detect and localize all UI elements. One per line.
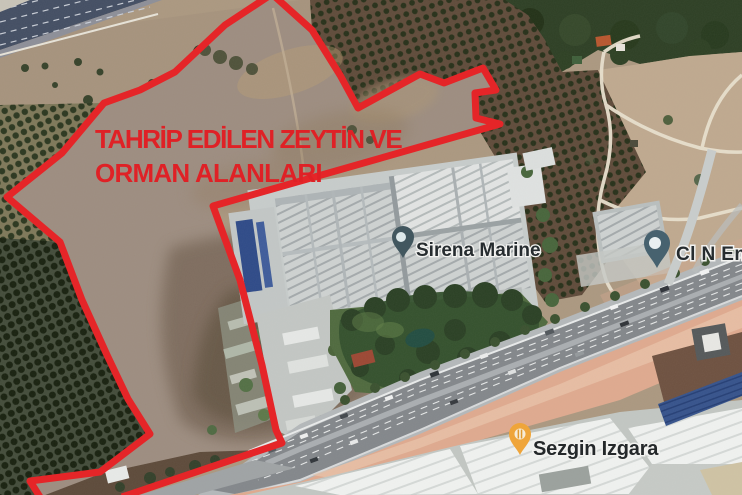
svg-text:Cl N Ener: Cl N Ener [676, 244, 742, 265]
svg-text:Sezgin Izgara: Sezgin Izgara [533, 438, 659, 460]
svg-text:TAHRİP EDİLEN ZEYTİN VE: TAHRİP EDİLEN ZEYTİN VE [95, 124, 402, 154]
svg-text:Sirena Marine: Sirena Marine [416, 240, 541, 261]
svg-text:ORMAN ALANLARI: ORMAN ALANLARI [95, 158, 322, 188]
